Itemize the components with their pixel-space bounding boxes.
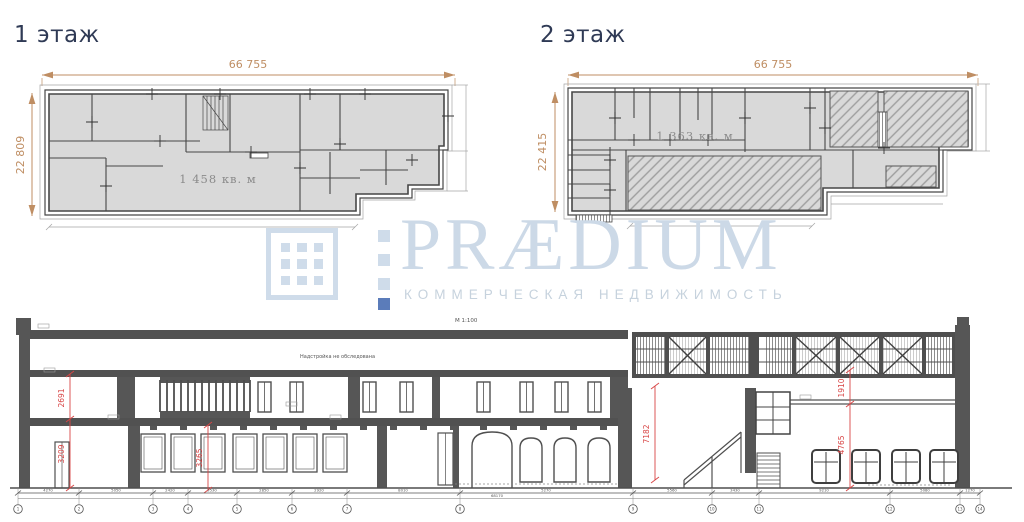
arrow-down-icon bbox=[29, 205, 36, 216]
arched-doorway bbox=[472, 432, 512, 488]
logo-dot-accent bbox=[378, 298, 390, 310]
dim-7182: 7182 bbox=[642, 424, 651, 443]
svg-text:9: 9 bbox=[632, 507, 635, 512]
dim-3265: 3265 bbox=[195, 448, 204, 467]
dim-2691: 2691 bbox=[57, 388, 66, 407]
floor1-walls: 1 458 кв. м bbox=[45, 88, 454, 215]
arrow-down-icon bbox=[552, 201, 559, 212]
attic-slab bbox=[30, 370, 628, 377]
section-left-wall bbox=[16, 318, 31, 488]
stair-diagonal bbox=[684, 432, 745, 488]
svg-text:12: 12 bbox=[887, 507, 893, 512]
axis-bubbles: 1 2 3 4 5 6 7 8 9 10 11 12 13 14 bbox=[14, 505, 985, 514]
floor1-width-label: 66 755 bbox=[229, 58, 268, 71]
arrow-up-icon bbox=[552, 92, 559, 103]
svg-text:2: 2 bbox=[78, 507, 81, 512]
svg-text:4270: 4270 bbox=[43, 488, 53, 493]
logo-dot bbox=[378, 254, 390, 266]
arrow-right-icon bbox=[967, 72, 978, 79]
second-floor-windows bbox=[258, 382, 601, 412]
central-column bbox=[618, 388, 632, 488]
svg-text:1270: 1270 bbox=[965, 488, 975, 493]
section-scale-label: М 1:100 bbox=[455, 318, 478, 324]
svg-text:2920: 2920 bbox=[314, 488, 324, 493]
svg-text:5560: 5560 bbox=[667, 488, 677, 493]
svg-text:13: 13 bbox=[957, 507, 963, 512]
svg-text:4: 4 bbox=[187, 507, 190, 512]
svg-text:14: 14 bbox=[977, 507, 983, 512]
dim-3209: 3209 bbox=[57, 444, 66, 463]
floor1-width-dimension: 66 755 bbox=[42, 58, 455, 86]
svg-text:3430: 3430 bbox=[730, 488, 740, 493]
floor2-exterior-stair bbox=[576, 215, 612, 222]
brand-tagline: КОММЕРЧЕСКАЯ НЕДВИЖИМОСТЬ bbox=[404, 287, 788, 302]
svg-text:5: 5 bbox=[236, 507, 239, 512]
floor1-height-dimension: 22 809 bbox=[14, 93, 35, 216]
chain-total-label: 68170 bbox=[491, 493, 504, 498]
svg-text:8010: 8010 bbox=[398, 488, 408, 493]
dimension-chain: 4270 5050 2420 3530 2850 2920 8010 5270 … bbox=[14, 488, 985, 514]
floor-plan-1-drawing: 66 755 22 809 bbox=[0, 0, 512, 250]
floor2-height-label: 22 415 bbox=[536, 133, 549, 172]
floor1-height-label: 22 809 bbox=[14, 136, 27, 175]
svg-text:5050: 5050 bbox=[111, 488, 121, 493]
svg-text:6: 6 bbox=[291, 507, 294, 512]
hall-interior bbox=[684, 388, 958, 488]
floor1-area-label: 1 458 кв. м bbox=[179, 172, 257, 186]
first-floor-left bbox=[55, 426, 618, 488]
arrow-right-icon bbox=[444, 72, 455, 79]
svg-text:5270: 5270 bbox=[541, 488, 551, 493]
building-section-drawing: М 1:100 Надстройка не обследована bbox=[0, 312, 1024, 522]
svg-text:11: 11 bbox=[756, 507, 762, 512]
brochure-page: 1 этаж 2 этаж 66 755 22 809 bbox=[0, 0, 1024, 522]
arched-windows bbox=[520, 438, 610, 482]
dim-4765: 4765 bbox=[837, 435, 846, 454]
floor-plan-2-drawing: 66 755 22 415 bbox=[512, 0, 1024, 250]
dim-1910: 1910 bbox=[837, 378, 846, 397]
svg-text:3: 3 bbox=[152, 507, 155, 512]
second-floor-glazing bbox=[160, 377, 250, 418]
svg-text:1: 1 bbox=[17, 507, 20, 512]
svg-text:2420: 2420 bbox=[165, 488, 175, 493]
arrow-up-icon bbox=[29, 93, 36, 104]
svg-text:8: 8 bbox=[459, 507, 462, 512]
floor2-walls: 1 363 кв. м bbox=[568, 88, 972, 222]
floor2-width-label: 66 755 bbox=[754, 58, 793, 71]
svg-text:7: 7 bbox=[346, 507, 349, 512]
floor-slab bbox=[30, 418, 628, 426]
hall-windows bbox=[812, 450, 958, 483]
arrow-left-icon bbox=[42, 72, 53, 79]
svg-text:2850: 2850 bbox=[259, 488, 269, 493]
roof-trusses bbox=[632, 332, 956, 378]
floor2-height-dimension: 22 415 bbox=[536, 92, 558, 212]
roof-slab bbox=[30, 330, 628, 339]
svg-text:5080: 5080 bbox=[920, 488, 930, 493]
svg-text:10: 10 bbox=[709, 507, 715, 512]
floor2-width-dimension: 66 755 bbox=[568, 58, 978, 86]
svg-text:9210: 9210 bbox=[819, 488, 829, 493]
floor2-area-label: 1 363 кв. м bbox=[656, 129, 734, 143]
floor2-stair-shaft bbox=[878, 112, 887, 147]
logo-dot bbox=[378, 278, 390, 290]
svg-text:3530: 3530 bbox=[207, 488, 217, 493]
arrow-left-icon bbox=[568, 72, 579, 79]
stair-straight bbox=[757, 453, 780, 488]
attic-note: Надстройка не обследована bbox=[300, 353, 375, 360]
